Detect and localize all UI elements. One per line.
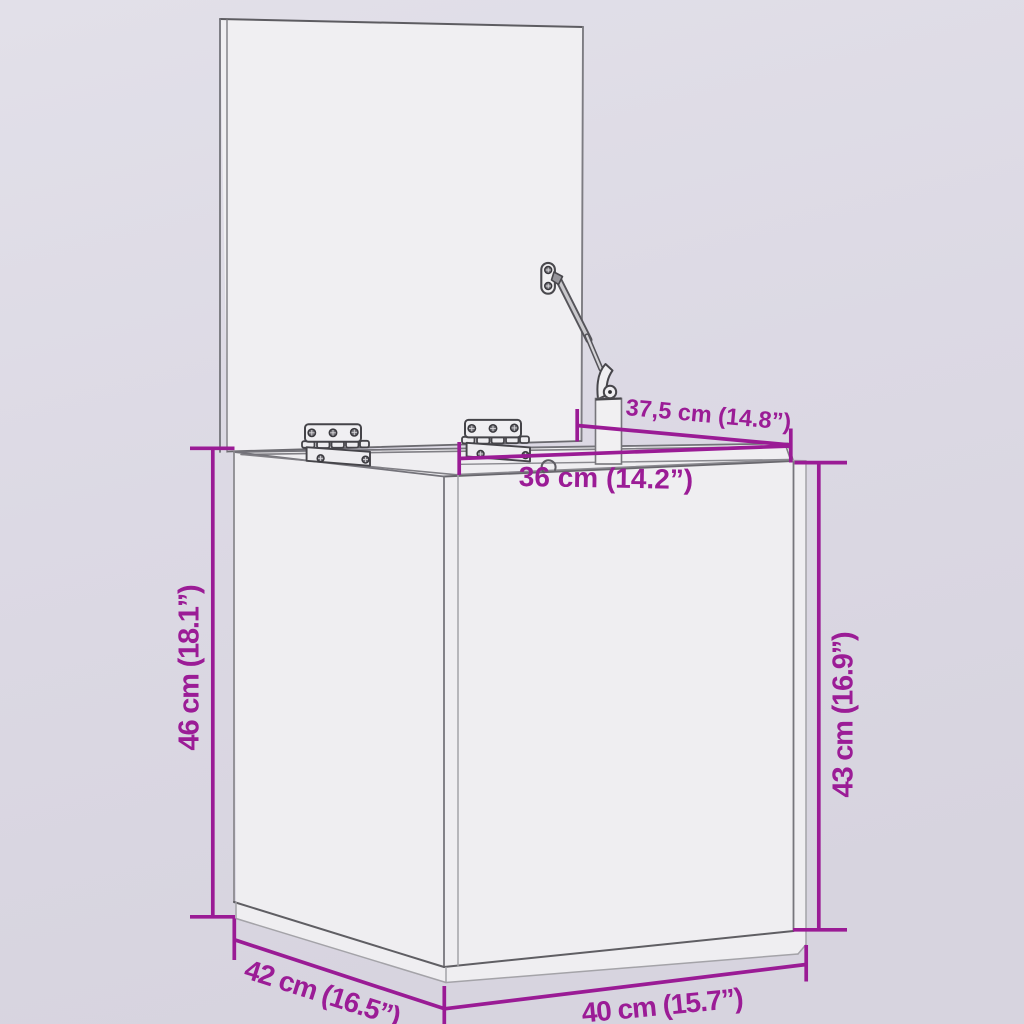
svg-text:43 cm (16.9”): 43 cm (16.9”) — [828, 632, 860, 797]
svg-text:36 cm (14.2”): 36 cm (14.2”) — [519, 461, 694, 495]
svg-text:46 cm (18.1”): 46 cm (18.1”) — [174, 585, 206, 750]
